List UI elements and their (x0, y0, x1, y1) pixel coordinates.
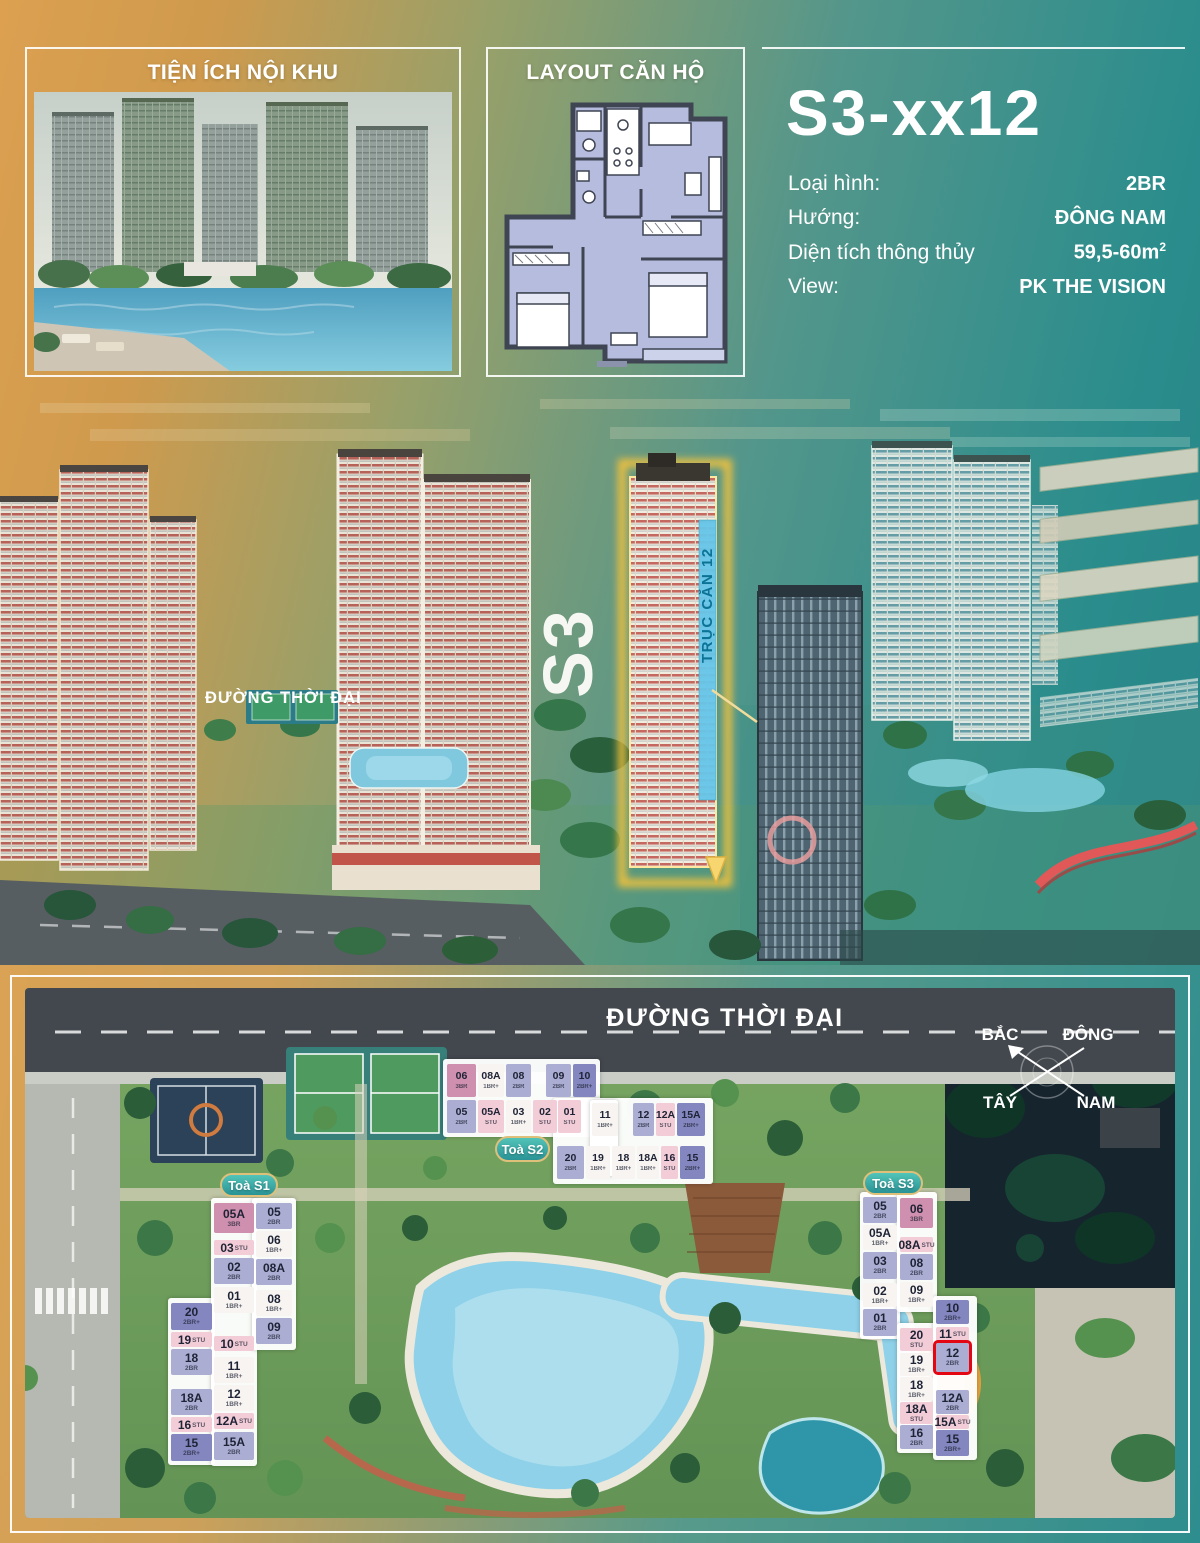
shophouse-rows (1040, 448, 1198, 727)
unit-chip: 063BR (900, 1198, 933, 1228)
unit-chip: 202BR+ (171, 1303, 212, 1330)
floorplan (493, 97, 739, 373)
sitemap-frame: ĐƯỜNG THỜI ĐẠI BẮC ĐÔNG TÂY NAM 202BR+19… (0, 965, 1200, 1543)
unit-chip: 121BR+ (214, 1385, 254, 1411)
unit-chip: 15ASTU (936, 1415, 969, 1429)
unit-chip: 061BR+ (256, 1231, 292, 1257)
tower-label-pill: Toà S3 (863, 1171, 923, 1195)
sitemap: ĐƯỜNG THỜI ĐẠI BẮC ĐÔNG TÂY NAM 202BR+19… (25, 988, 1175, 1518)
tower-label-pill: Toà S1 (220, 1173, 278, 1197)
tower-label-pill: Toà S2 (495, 1136, 550, 1162)
aerial-axis-label: TRỤC CĂN 12 (699, 547, 716, 663)
unit-chip: 08A2BR (256, 1259, 292, 1285)
unit-chip: 012BR (863, 1309, 897, 1336)
unit-chip: 05A1BR+ (863, 1225, 897, 1250)
unit-chip: 111BR+ (214, 1357, 254, 1383)
unit-chip: 202BR (557, 1146, 584, 1179)
spec-row-type: Loại hình: 2BR (788, 172, 1166, 196)
unit-chip: 182BR (171, 1349, 212, 1375)
unit-chip: 082BR (900, 1254, 933, 1280)
spec-row-area: Diện tích thông thủy 59,5-60m2 (788, 240, 1166, 265)
unit-chip: 19STU (171, 1332, 212, 1347)
unit-chip: 05ASTU (478, 1100, 504, 1133)
unit-chip: 16STU (661, 1146, 678, 1179)
unit-specs: Loại hình: 2BR Hướng: ĐÔNG NAM Diện tích… (788, 172, 1166, 309)
unit-chip: 191BR+ (900, 1353, 933, 1376)
aerial-render: ĐƯỜNG THỜI ĐẠI S3 TRỤC CĂN 12 (0, 385, 1200, 965)
unit-chip: 20STU (900, 1328, 933, 1351)
aerial-street-label: ĐƯỜNG THỜI ĐẠI (205, 688, 362, 707)
unit-chip: 12ASTU (214, 1413, 254, 1429)
unit-chip: 12A2BR (936, 1390, 969, 1414)
unit-code-title: S3-xx12 (786, 76, 1196, 150)
unit-chip: 031BR+ (506, 1100, 531, 1133)
unit-chip: 063BR (447, 1064, 476, 1097)
unit-chip: 01STU (558, 1100, 581, 1133)
unit-chip: 011BR+ (214, 1287, 254, 1313)
unit-chip: 152BR+ (171, 1434, 212, 1461)
distant-city (40, 399, 1190, 447)
unit-chip: 10STU (214, 1336, 254, 1351)
unit-chip: 11STU (936, 1327, 969, 1341)
unit-chip: 092BR (546, 1064, 571, 1097)
unit-chip: 08A1BR+ (478, 1064, 504, 1097)
unit-chip: 08ASTU (900, 1237, 933, 1252)
unit-chip: 092BR (256, 1318, 292, 1344)
unit-chip: 021BR+ (863, 1283, 897, 1307)
amenities-title: TIỆN ÍCH NỘI KHU (27, 61, 459, 85)
unit-chip-highlighted: 122BR (936, 1343, 969, 1372)
unit-chip: 091BR+ (900, 1282, 933, 1307)
unit-chip: 15A2BR (214, 1432, 254, 1460)
tower-cluster-mid (332, 449, 540, 890)
unit-chip: 122BR (633, 1103, 654, 1136)
amenities-panel: TIỆN ÍCH NỘI KHU (25, 47, 461, 377)
unit-chip: 162BR (900, 1425, 933, 1449)
unit-layer: 202BR+19STU182BR18A2BR16STU152BR+05A3BR0… (25, 988, 1175, 1518)
layout-panel: LAYOUT CĂN HỘ (486, 47, 745, 377)
unit-chip: 03STU (214, 1240, 254, 1255)
unit-panel-divider (762, 47, 1185, 49)
unit-chip: 082BR (506, 1064, 531, 1097)
unit-chip: 02STU (533, 1100, 557, 1133)
spec-row-direction: Hướng: ĐÔNG NAM (788, 206, 1166, 230)
unit-chip: 12ASTU (656, 1103, 675, 1136)
spec-row-view: View: PK THE VISION (788, 275, 1166, 299)
layout-title: LAYOUT CĂN HỘ (488, 61, 743, 85)
unit-chip: 111BR+ (592, 1103, 618, 1136)
unit-chip: 18A1BR+ (637, 1146, 659, 1179)
brochure-page: TIỆN ÍCH NỘI KHU (0, 0, 1200, 1543)
unit-chip: 081BR+ (256, 1290, 292, 1316)
unit-chip: 052BR (256, 1203, 292, 1229)
aerial-tower-label: S3 (529, 608, 607, 698)
amenities-photo (34, 92, 452, 371)
unit-chip: 102BR+ (936, 1300, 969, 1324)
unit-chip: 05A3BR (214, 1203, 254, 1233)
unit-chip: 181BR+ (900, 1377, 933, 1401)
unit-chip: 102BR+ (573, 1064, 596, 1097)
unit-chip: 152BR+ (936, 1430, 969, 1456)
unit-chip: 181BR+ (612, 1146, 635, 1179)
unit-chip: 16STU (171, 1417, 212, 1432)
unit-chip: 052BR (447, 1100, 476, 1133)
unit-chip: 152BR+ (680, 1146, 705, 1179)
unit-chip: 18ASTU (900, 1402, 933, 1424)
unit-chip: 032BR (863, 1252, 897, 1279)
unit-chip: 022BR (214, 1258, 254, 1284)
unit-chip: 191BR+ (586, 1146, 610, 1179)
unit-chip: 18A2BR (171, 1389, 212, 1415)
tower-cluster-left (0, 465, 196, 870)
unit-chip: 15A2BR+ (677, 1103, 705, 1136)
unit-chip: 052BR (863, 1197, 897, 1223)
